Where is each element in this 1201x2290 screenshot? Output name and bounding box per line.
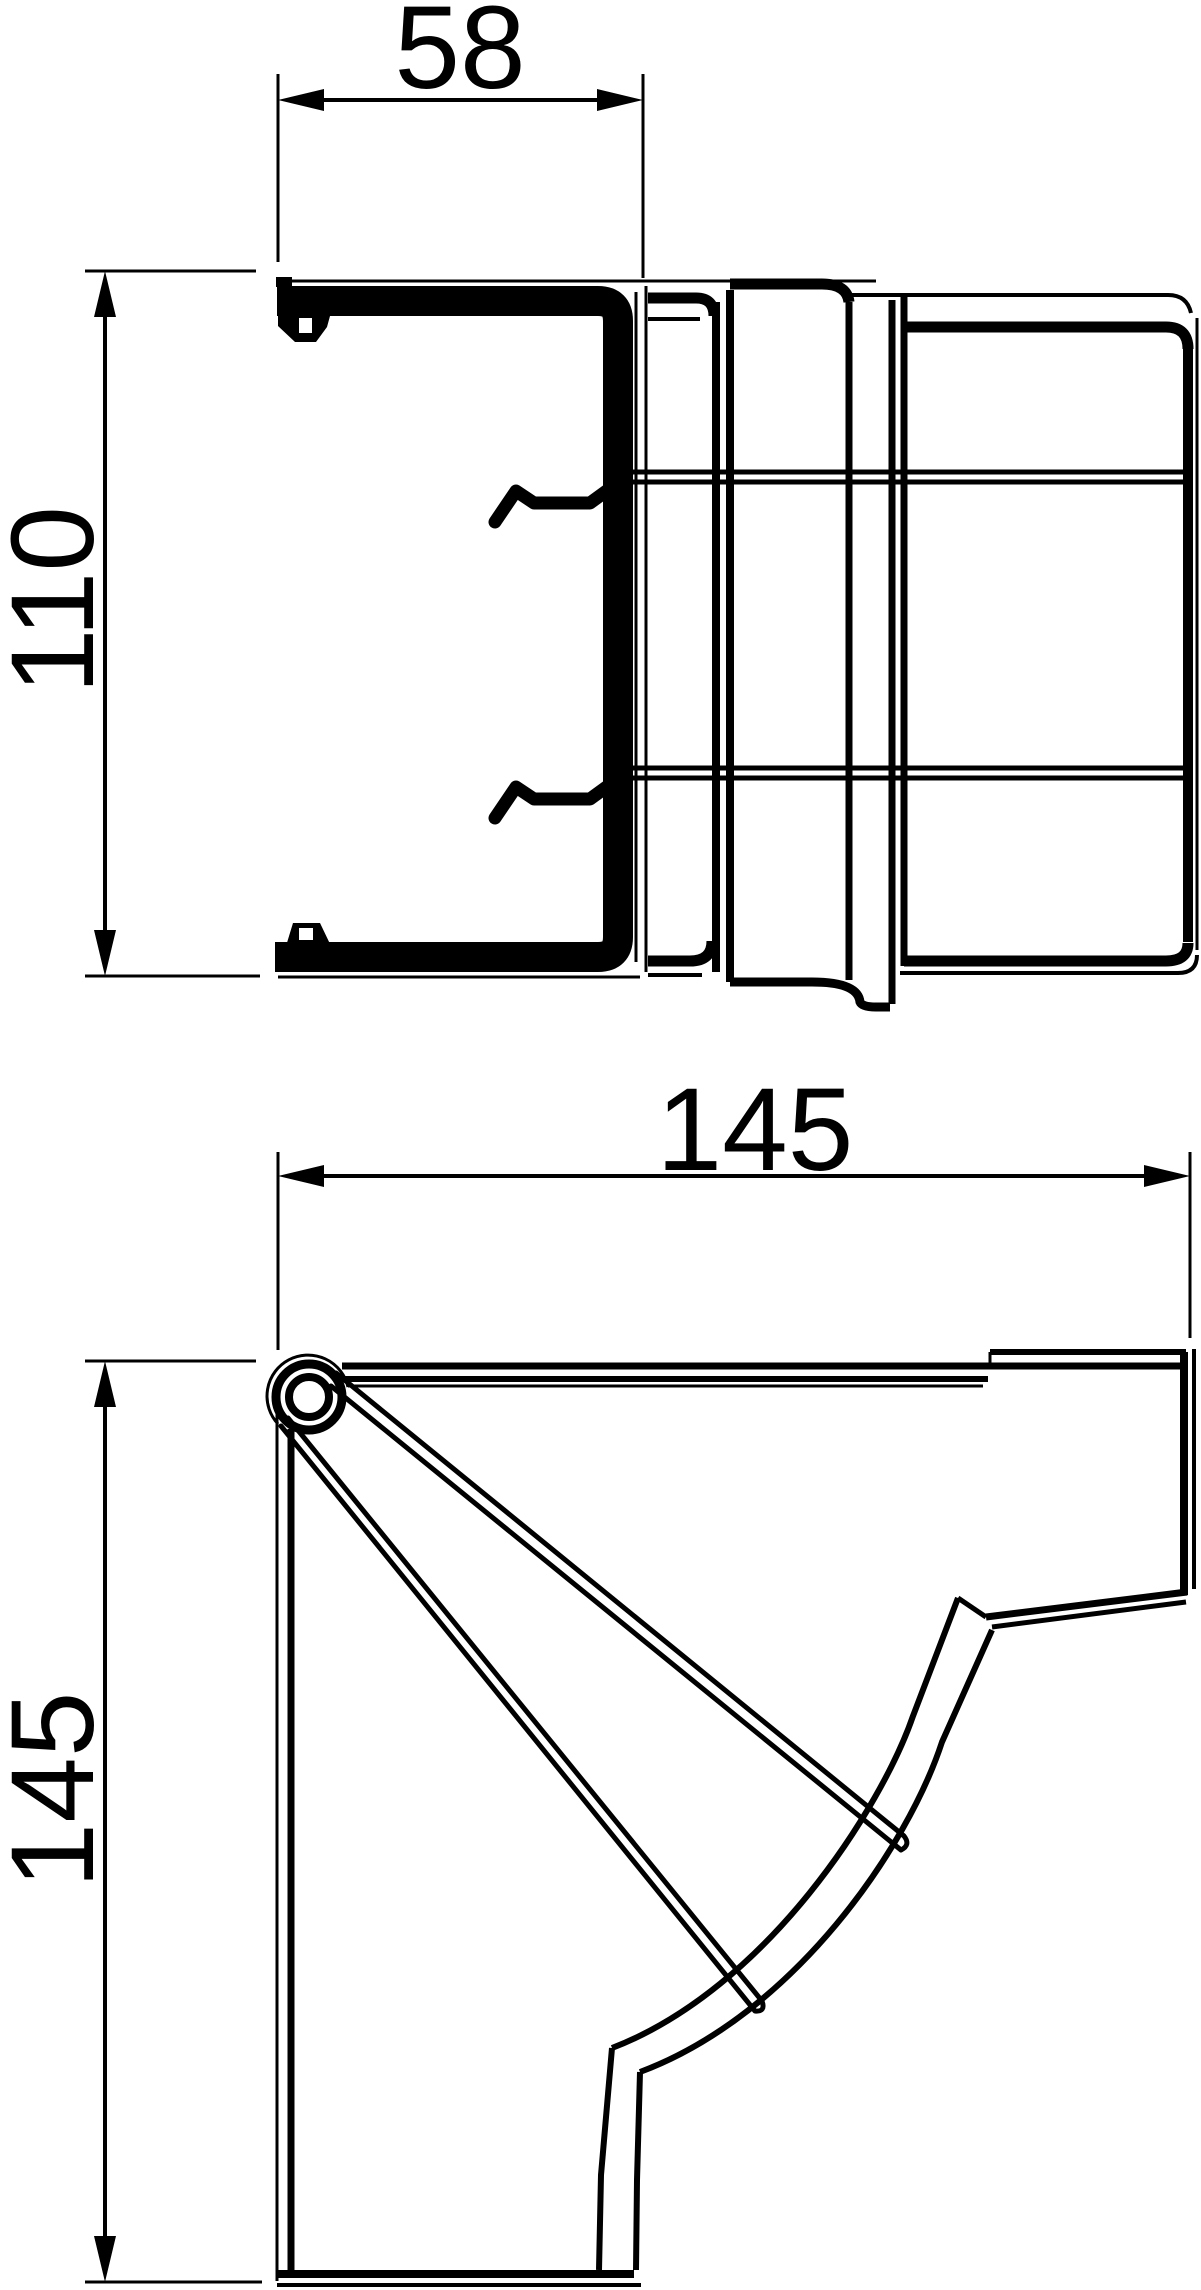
- dimension-arrow-left: [278, 1165, 324, 1187]
- front-view: 145 145: [0, 1064, 1194, 2285]
- dimension-145-top: 145: [278, 1064, 1190, 1350]
- technical-drawing: 58 110: [0, 0, 1201, 2290]
- dimension-110-label: 110: [0, 506, 119, 694]
- outlet-right-edge: [636, 2072, 640, 2270]
- dimension-58-arrow-right: [597, 89, 643, 111]
- channel-profile: [275, 277, 876, 977]
- dimension-110-arrow-top: [94, 271, 116, 317]
- dimension-58: 58: [278, 0, 643, 278]
- top-clip-slot: [299, 318, 312, 333]
- bottom-clip-slot: [299, 928, 313, 940]
- dimension-110-arrow-bottom: [94, 930, 116, 976]
- dimension-arrow-top: [94, 1361, 116, 1407]
- section-b-top: [730, 284, 849, 302]
- dimension-145-left: 145: [0, 1361, 262, 2282]
- drawing-sheet: 58 110: [0, 0, 1201, 2290]
- section-c-top: [904, 327, 1188, 349]
- section-a-top: [648, 298, 714, 316]
- top-view: 58 110: [0, 0, 1197, 1007]
- outlet-left-edge: [599, 2048, 612, 2270]
- section-b-bottom: [730, 982, 890, 1007]
- retaining-hook-upper: [495, 487, 612, 522]
- c-profile-body: [275, 301, 618, 957]
- dimension-110: 110: [0, 271, 260, 976]
- dimension-arrow-bottom: [94, 2236, 116, 2282]
- dimension-58-arrow-left: [278, 89, 324, 111]
- notch-edge: [958, 1598, 986, 1617]
- lid-tip-lip: [276, 277, 292, 287]
- dimension-arrow-right: [1144, 1165, 1190, 1187]
- pivot-ring-inner: [289, 1377, 329, 1417]
- corner-body: [267, 1349, 1194, 2285]
- telescopic-sections: [633, 284, 1197, 1007]
- retaining-hook-lower: [495, 783, 612, 818]
- cone-edge-lower: [281, 1418, 763, 2011]
- section-a-bottom: [648, 941, 712, 961]
- dimension-58-label: 58: [394, 0, 525, 114]
- section-c-bottom: [904, 943, 1188, 961]
- dimension-145-left-label: 145: [0, 1692, 119, 1889]
- cone-edge-upper: [331, 1373, 907, 1850]
